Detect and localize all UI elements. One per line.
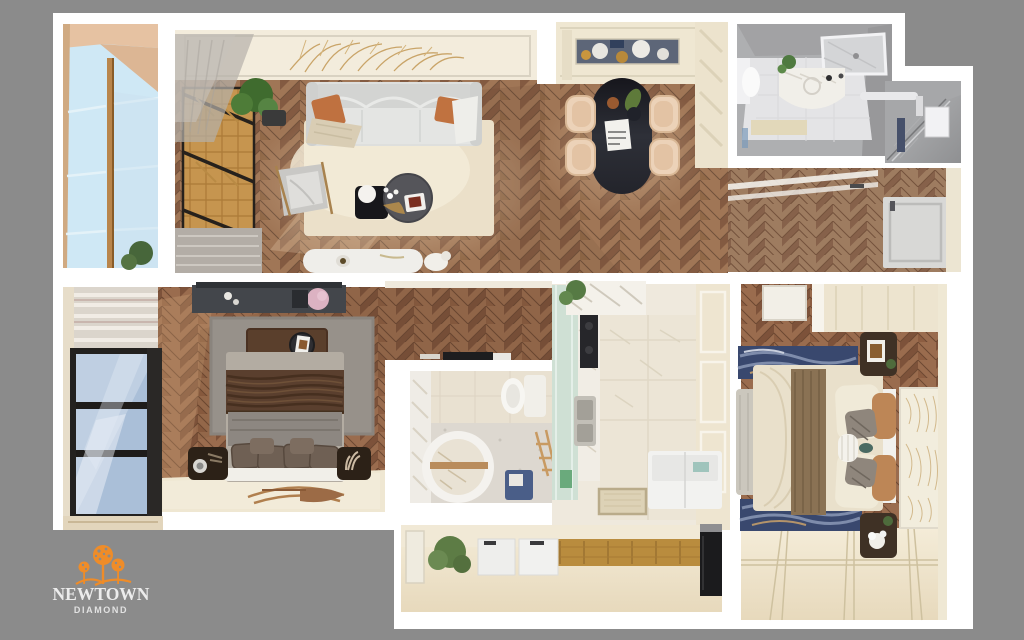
- svg-text:DIAMOND: DIAMOND: [74, 605, 128, 615]
- svg-text:NEWTOWN: NEWTOWN: [53, 584, 150, 604]
